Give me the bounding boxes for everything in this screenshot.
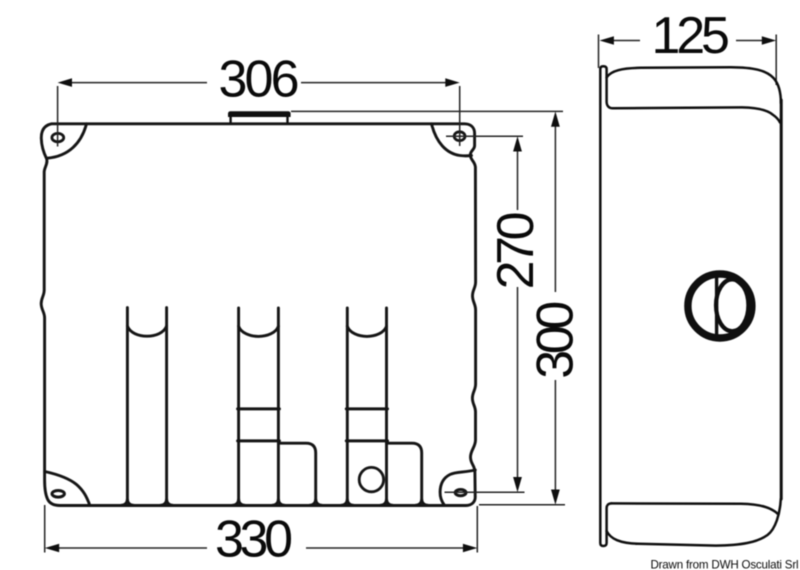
svg-text:306: 306 — [219, 51, 300, 109]
svg-text:300: 300 — [527, 301, 585, 379]
svg-text:270: 270 — [487, 211, 545, 289]
svg-text:330: 330 — [215, 511, 293, 569]
svg-text:125: 125 — [651, 7, 730, 65]
svg-text:Drawn from DWH Osculati Srl: Drawn from DWH Osculati Srl — [650, 559, 798, 570]
